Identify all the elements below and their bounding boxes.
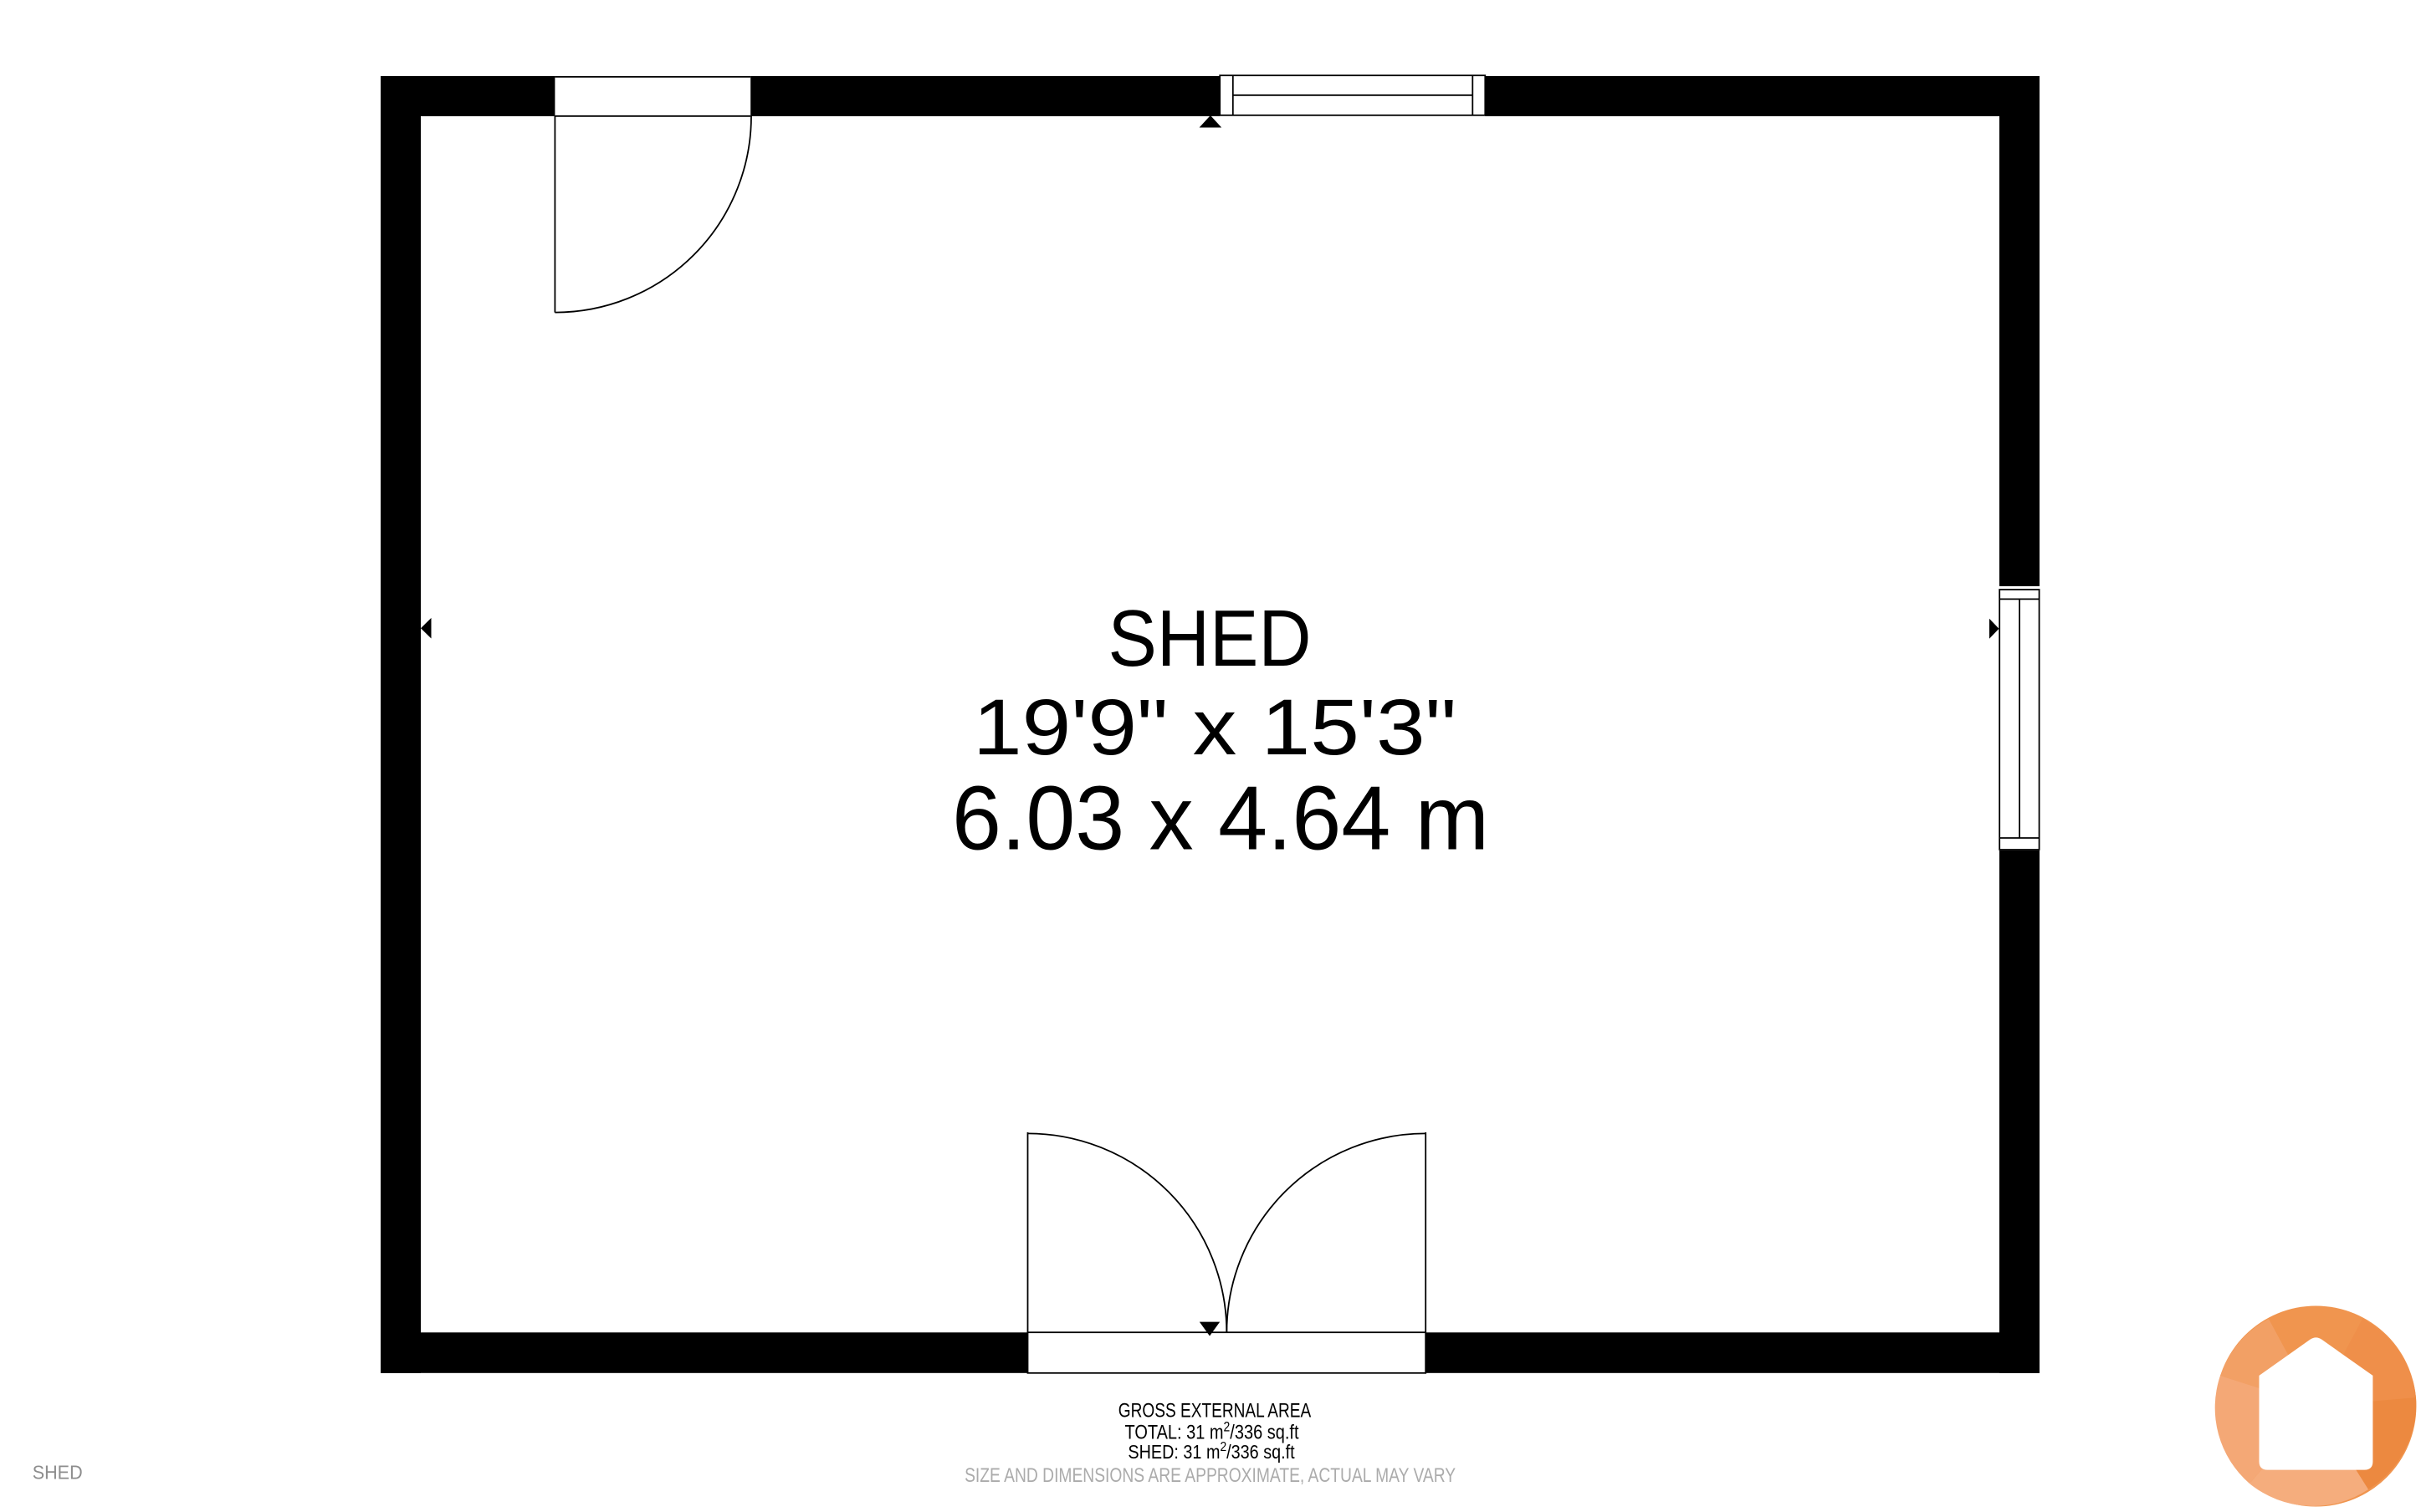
svg-text:SIZE AND DIMENSIONS ARE APPROX: SIZE AND DIMENSIONS ARE APPROXIMATE, ACT… bbox=[965, 1464, 1456, 1487]
svg-text:6.03 x 4.64 m: 6.03 x 4.64 m bbox=[952, 767, 1489, 868]
svg-text:GROSS EXTERNAL AREA: GROSS EXTERNAL AREA bbox=[1118, 1400, 1312, 1422]
svg-text:SHED: SHED bbox=[33, 1461, 83, 1483]
svg-text:TOTAL: 31 m2/336 sq.ft: TOTAL: 31 m2/336 sq.ft bbox=[1124, 1419, 1298, 1443]
svg-text:SHED: 31 m2/336 sq.ft: SHED: 31 m2/336 sq.ft bbox=[1128, 1439, 1294, 1463]
svg-text:SHED: SHED bbox=[1108, 594, 1312, 683]
svg-text:19'9" x 15'3": 19'9" x 15'3" bbox=[973, 683, 1456, 772]
